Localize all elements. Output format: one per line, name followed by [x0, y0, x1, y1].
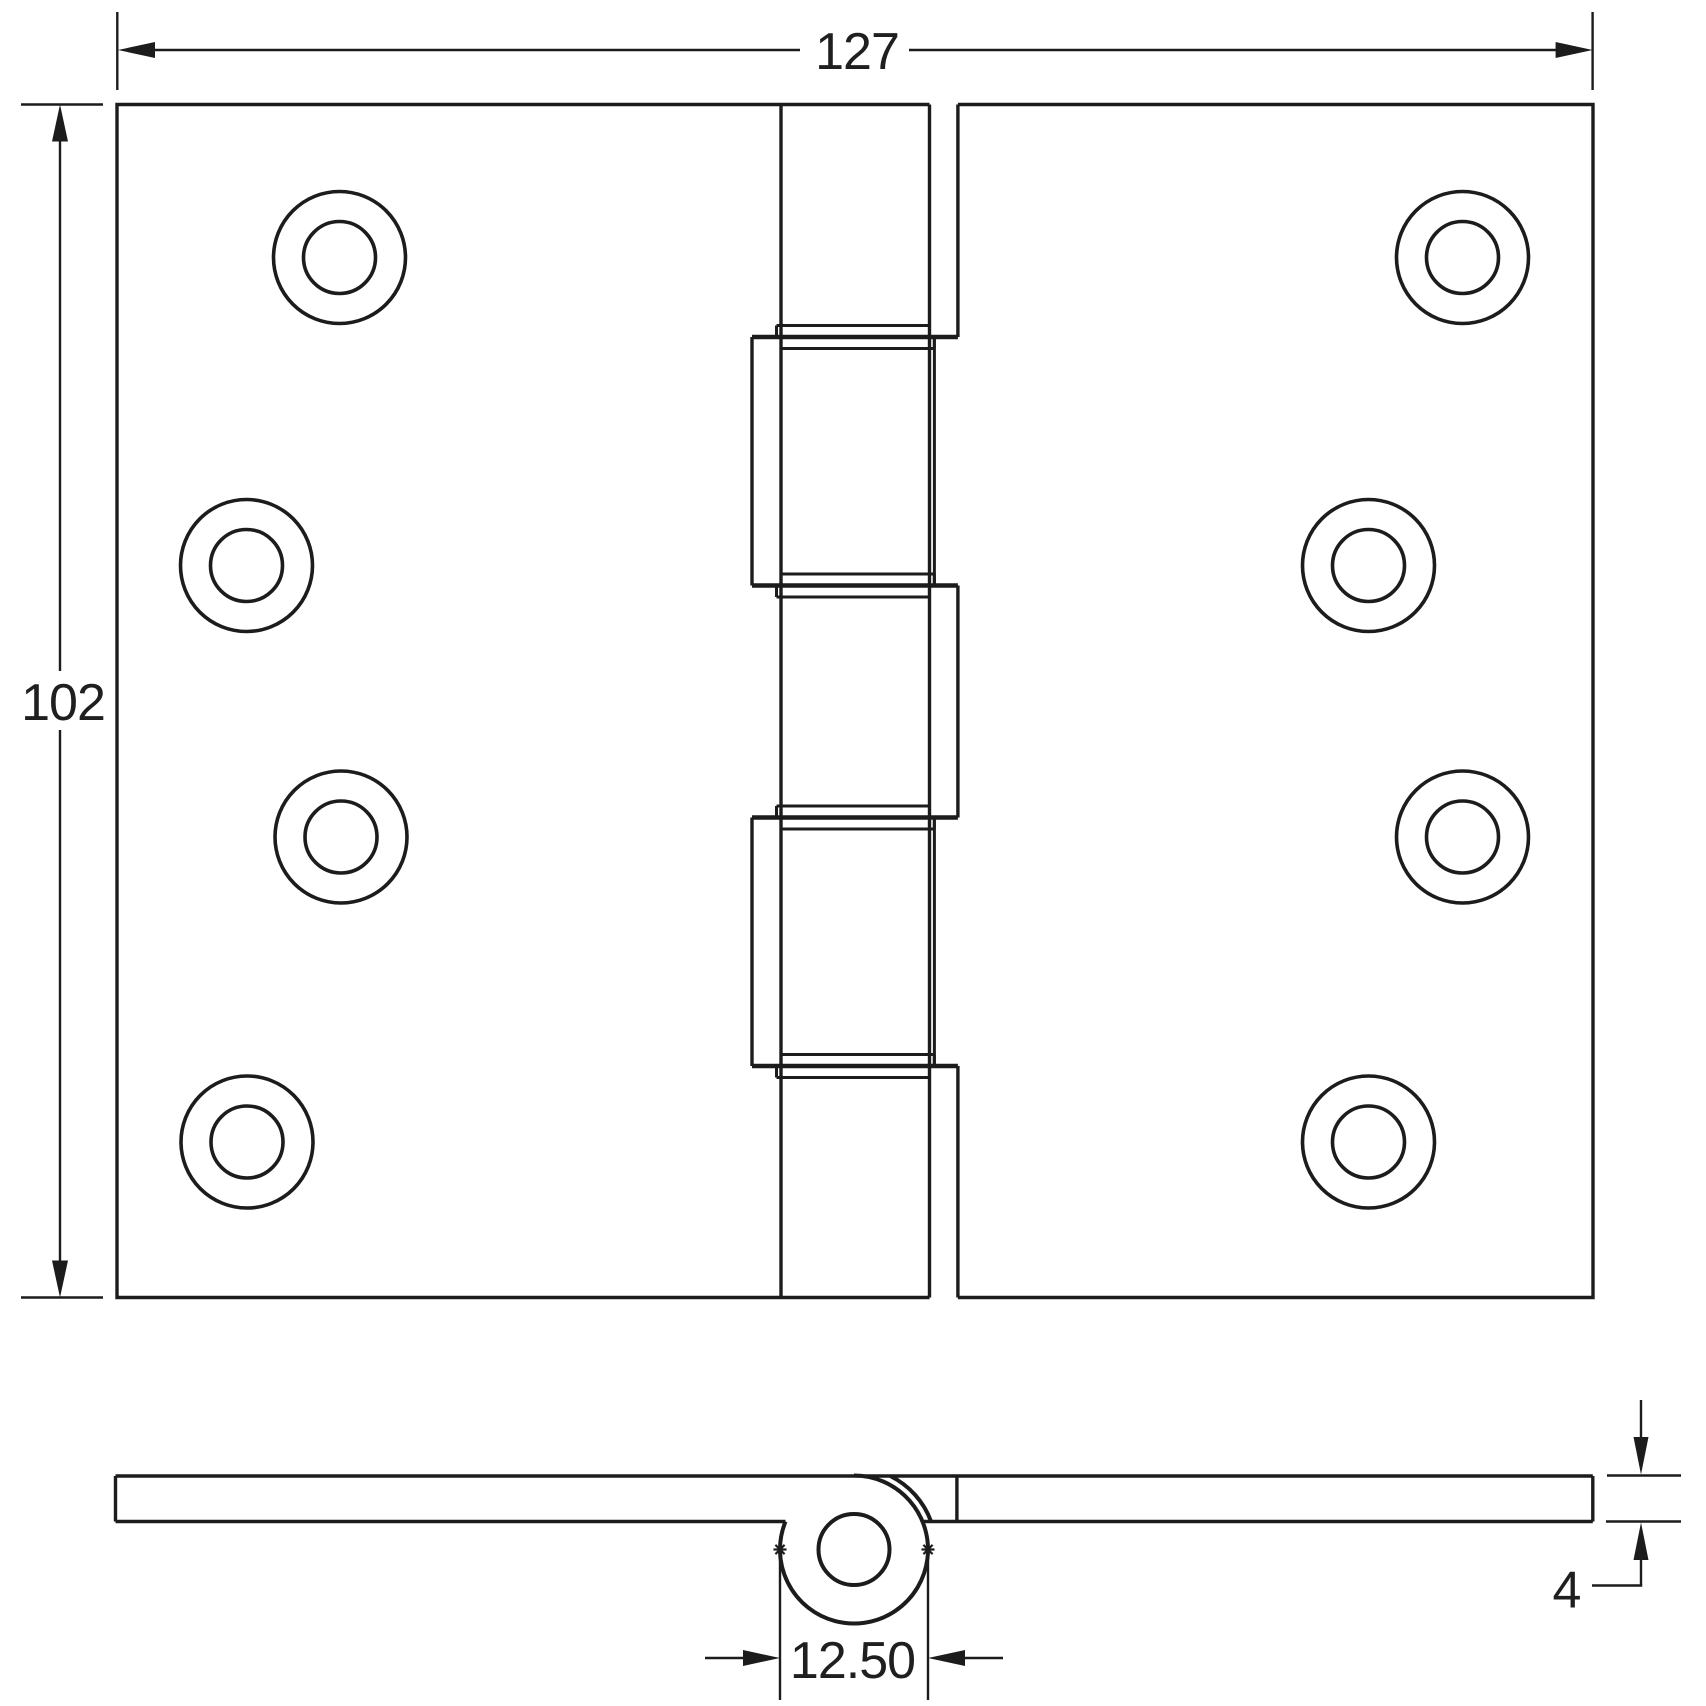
svg-text:127: 127 [815, 23, 899, 81]
svg-text:12.50: 12.50 [790, 1632, 915, 1690]
svg-text:4: 4 [1553, 1562, 1582, 1620]
svg-text:102: 102 [21, 674, 105, 732]
